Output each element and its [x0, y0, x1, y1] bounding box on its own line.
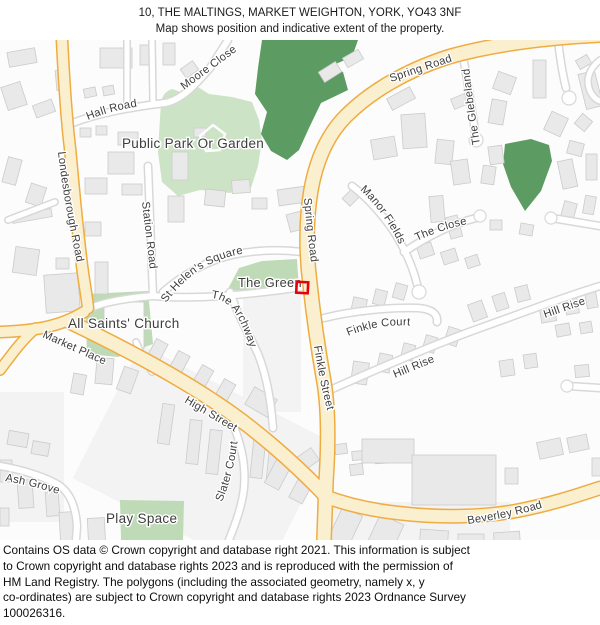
copyright-line: co-ordinates) are subject to Crown copyr… [3, 590, 597, 606]
title-address-line: 10, THE MALTINGS, MARKET WEIGHTON, YORK,… [0, 5, 600, 21]
area-label-play-space: Play Space [106, 511, 177, 526]
area-label-all-saints-church: All Saints' Church [68, 316, 180, 331]
area-label-public-park: Public Park Or Garden [122, 136, 264, 151]
copyright-line: Contains OS data © Crown copyright and d… [3, 543, 597, 559]
map-container: Moore Close Hall Road Londesborough Road… [0, 40, 600, 540]
title-description-line: Map shows position and indicative extent… [0, 21, 600, 37]
map-title: 10, THE MALTINGS, MARKET WEIGHTON, YORK,… [0, 0, 600, 40]
property-map-page: 10, THE MALTINGS, MARKET WEIGHTON, YORK,… [0, 0, 600, 625]
copyright-line: to Crown copyright and database rights 2… [3, 559, 597, 575]
copyright-line: 100026316. [3, 606, 597, 622]
copyright-notice: Contains OS data © Crown copyright and d… [0, 541, 600, 624]
copyright-line: HM Land Registry. The polygons (includin… [3, 575, 597, 591]
area-label-the-green: The Green [238, 275, 302, 290]
map-canvas: Moore Close Hall Road Londesborough Road… [0, 40, 600, 540]
